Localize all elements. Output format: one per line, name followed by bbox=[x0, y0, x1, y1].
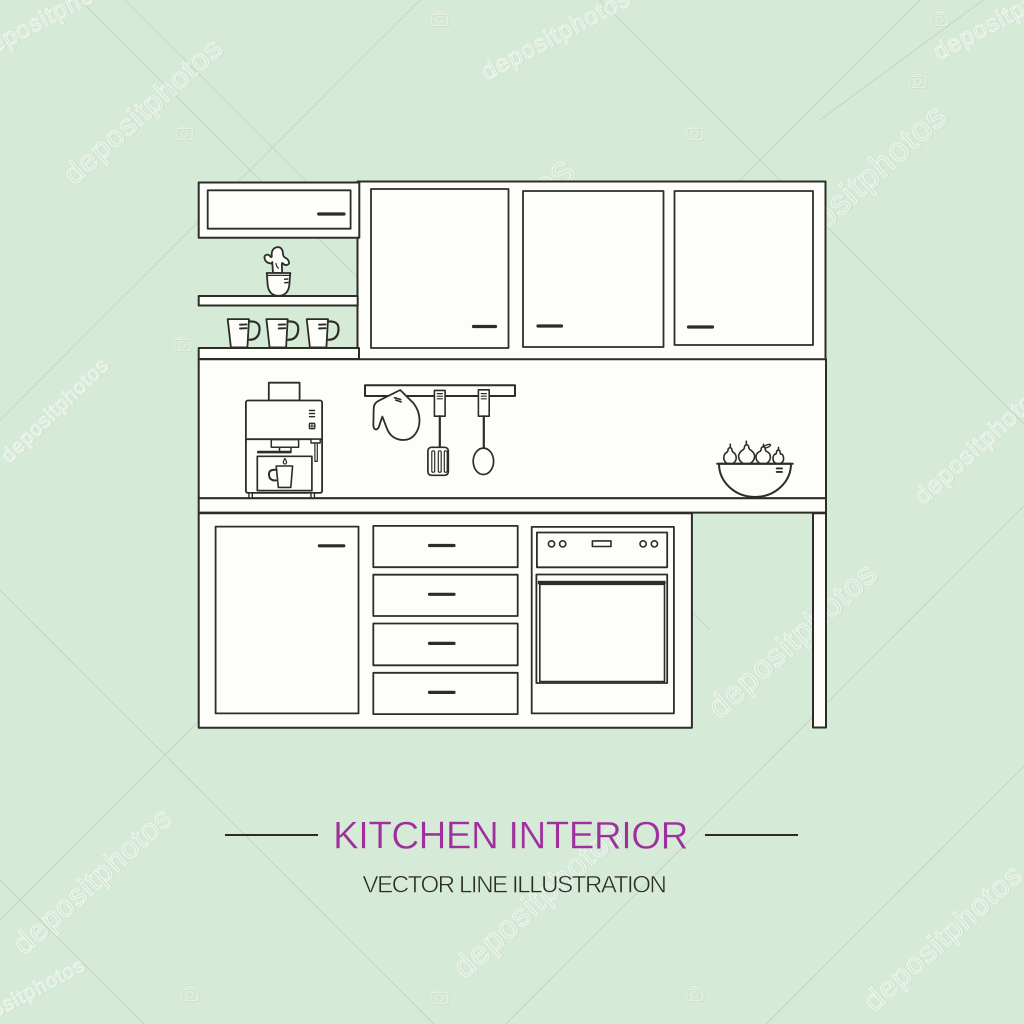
svg-text:KITCHEN INTERIOR: KITCHEN INTERIOR bbox=[333, 815, 688, 858]
svg-text:VECTOR LINE ILLUSTRATION: VECTOR LINE ILLUSTRATION bbox=[363, 871, 666, 898]
